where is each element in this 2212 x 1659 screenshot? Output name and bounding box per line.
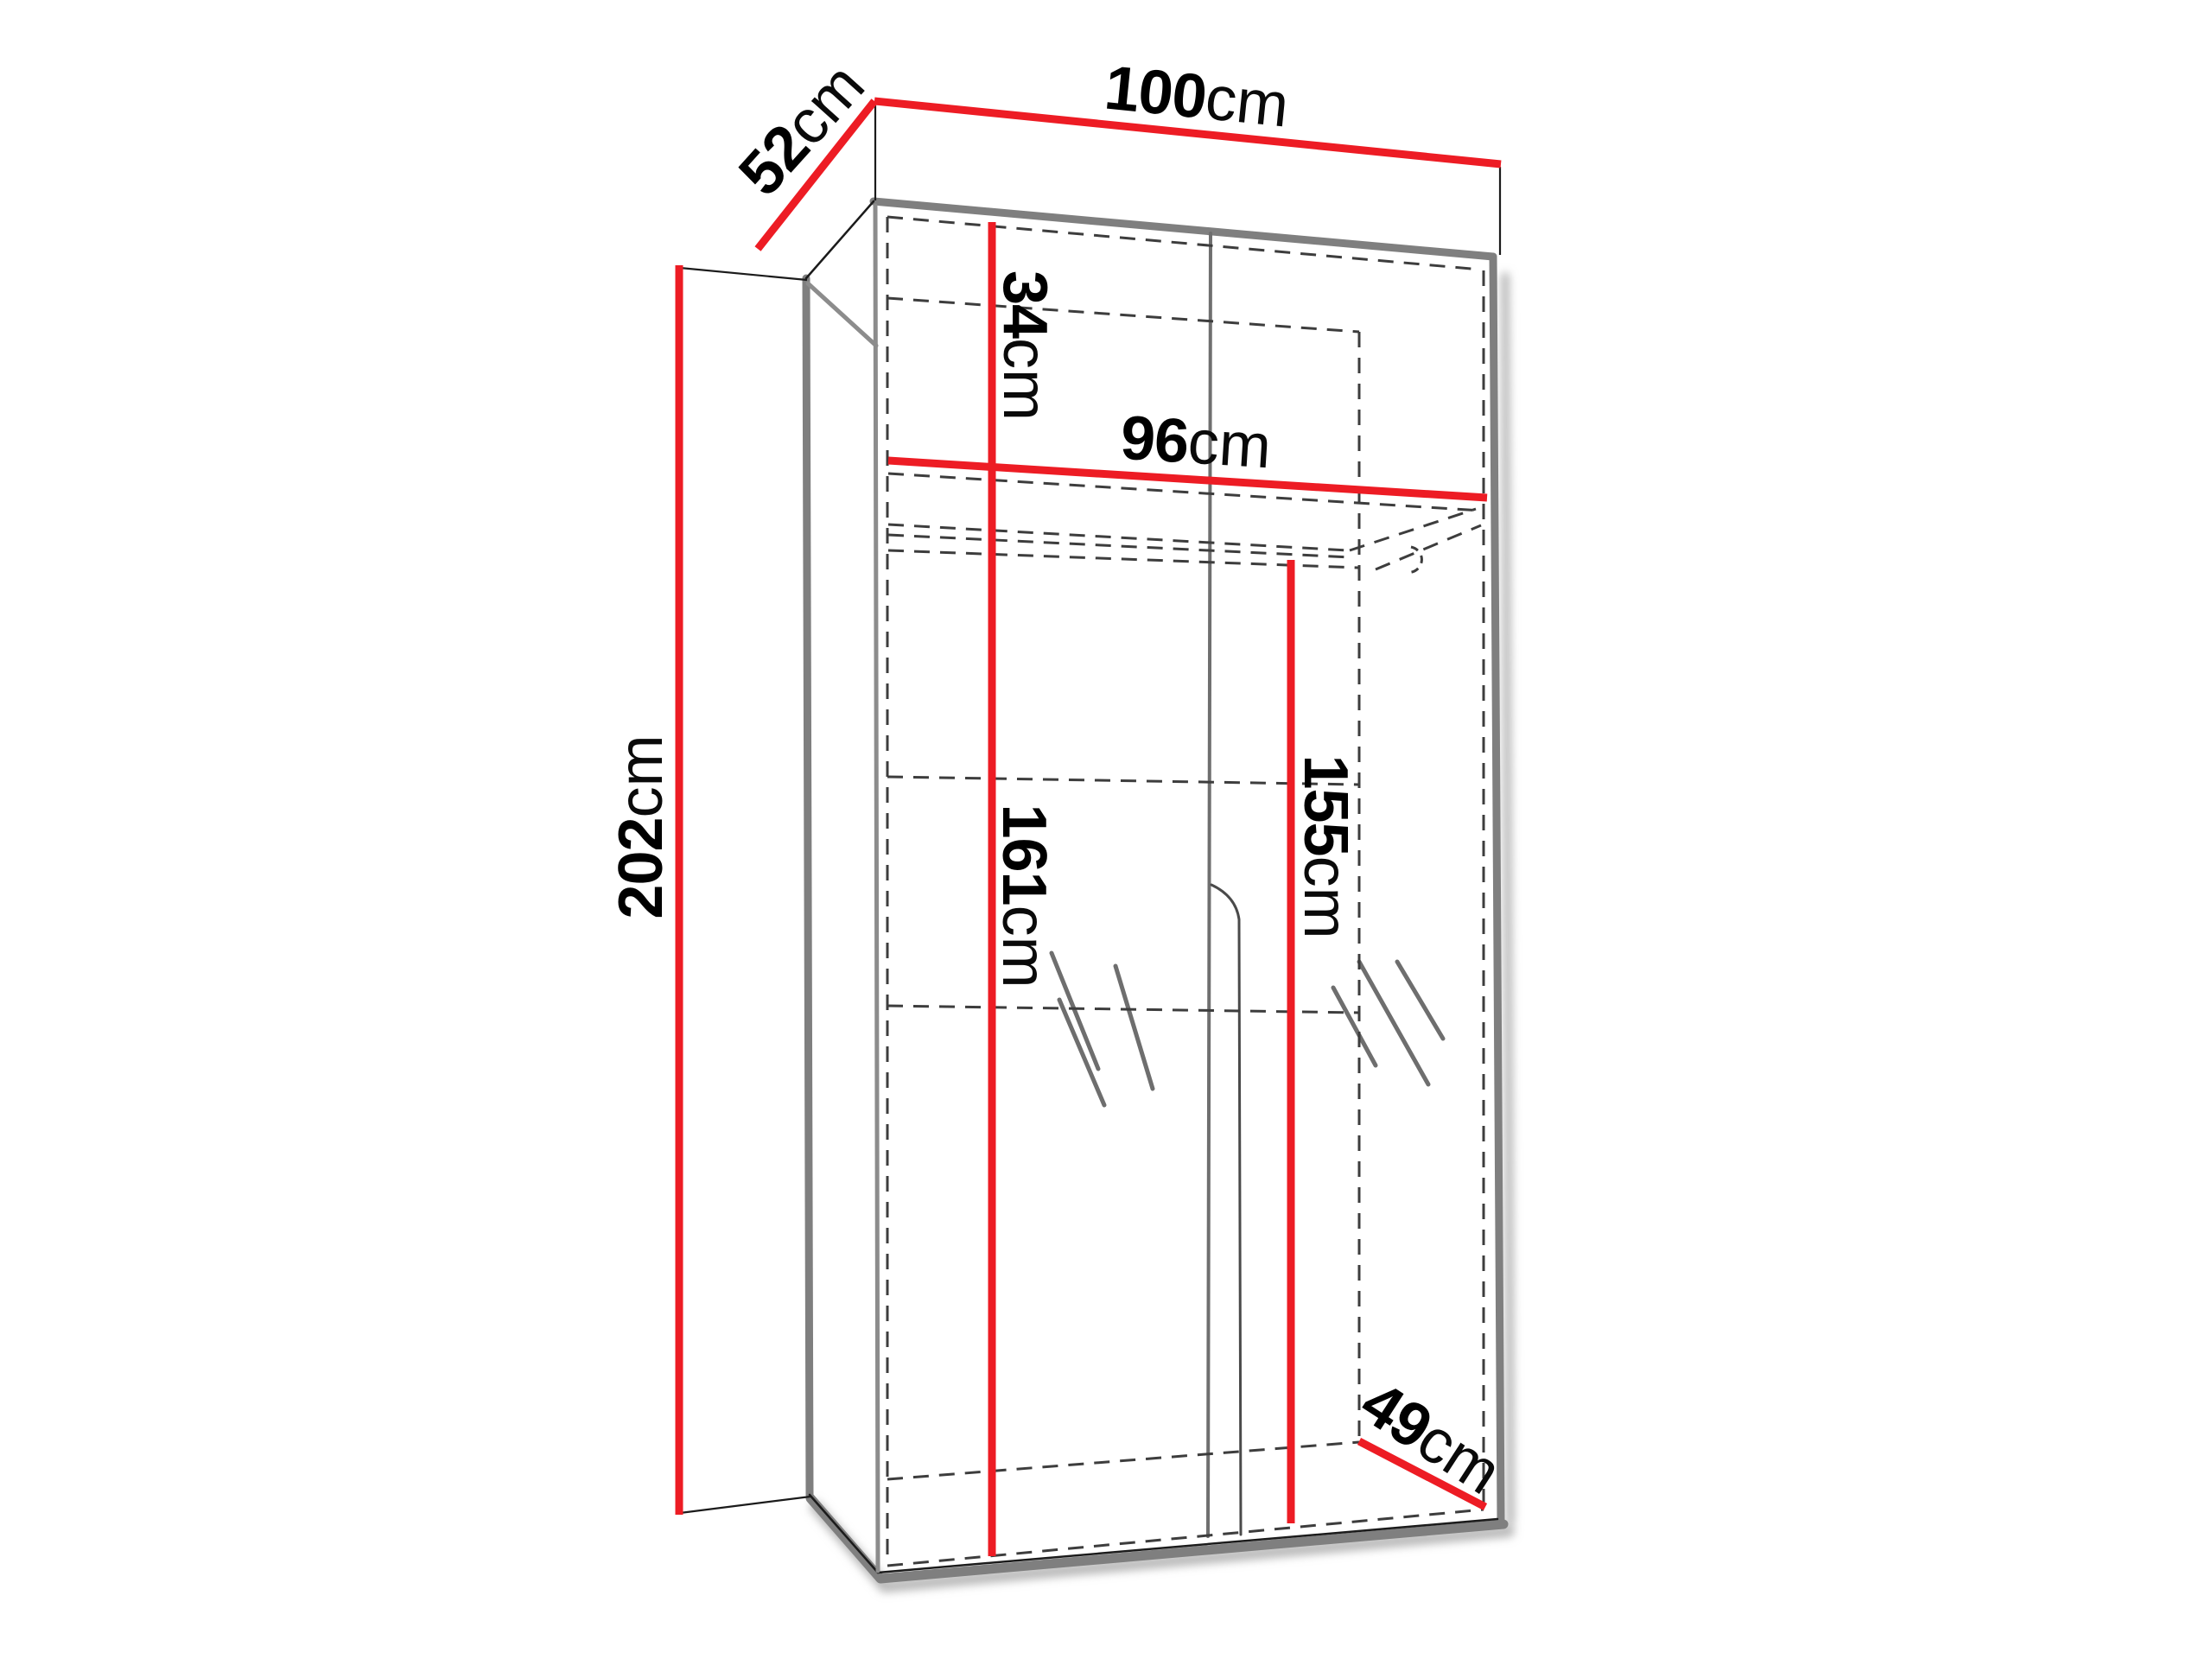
label-height-unit: cm	[607, 734, 676, 817]
cabinet-left-edge	[806, 278, 810, 1495]
label-top-compartment-value: 34	[990, 270, 1059, 339]
side-panel-bottom-edge	[810, 1495, 878, 1573]
label-interior-width-value: 96	[1119, 404, 1191, 477]
label-right-interior-value: 155	[1291, 754, 1360, 855]
label-top-compartment-unit: cm	[990, 338, 1059, 421]
cabinet-top-front-edge	[874, 201, 1493, 257]
label-right-interior-unit: cm	[1291, 856, 1360, 939]
top-slab-left-edge	[808, 283, 876, 346]
height-extension-bottom	[680, 1497, 810, 1513]
label-height: 202cm	[607, 734, 676, 918]
label-right-interior-height: 155cm	[1291, 754, 1360, 938]
interior-ceiling-back-edge	[887, 298, 1359, 332]
shine-stroke	[1333, 988, 1376, 1065]
right-shadow	[1505, 276, 1510, 1521]
diagram-svg: 100cm 52cm 202cm 34cm 96cm 161cm 155cm 4…	[0, 0, 2212, 1659]
label-interior-width-unit: cm	[1186, 408, 1274, 482]
shine-stroke	[1116, 966, 1153, 1089]
shine-stroke	[1397, 962, 1443, 1039]
shine-stroke	[1059, 1000, 1104, 1105]
label-bottom-depth: 49cm	[1349, 1368, 1513, 1508]
cabinet-near-corner-edge	[875, 206, 878, 1571]
side-panel-top-edge	[806, 201, 874, 278]
shelf-right-edge-front	[1376, 525, 1481, 569]
height-extension-top	[680, 268, 807, 280]
label-left-interior-value: 161	[989, 804, 1058, 905]
left-door-glass-shine	[1052, 953, 1153, 1105]
cabinet-right-edge	[1493, 257, 1501, 1522]
label-height-value: 202	[607, 817, 676, 918]
label-interior-width: 96cm	[1119, 404, 1274, 482]
label-top-compartment-height: 34cm	[990, 270, 1059, 421]
label-top-width-unit: cm	[1202, 63, 1292, 140]
wardrobe-dimension-diagram: 100cm 52cm 202cm 34cm 96cm 161cm 155cm 4…	[0, 0, 2212, 1659]
shine-stroke	[1359, 962, 1428, 1084]
hanging-rail-top	[888, 524, 1348, 550]
label-left-interior-unit: cm	[989, 906, 1058, 988]
label-top-width-value: 100	[1102, 53, 1210, 131]
label-left-interior-height: 161cm	[989, 804, 1058, 988]
rail-end-bracket	[1406, 547, 1421, 572]
door-handle	[1211, 885, 1241, 1535]
right-door-glass-shine	[1333, 962, 1443, 1084]
shelf-right-edge-back	[1350, 509, 1476, 550]
interior-ceiling-front-edge	[887, 217, 1481, 270]
